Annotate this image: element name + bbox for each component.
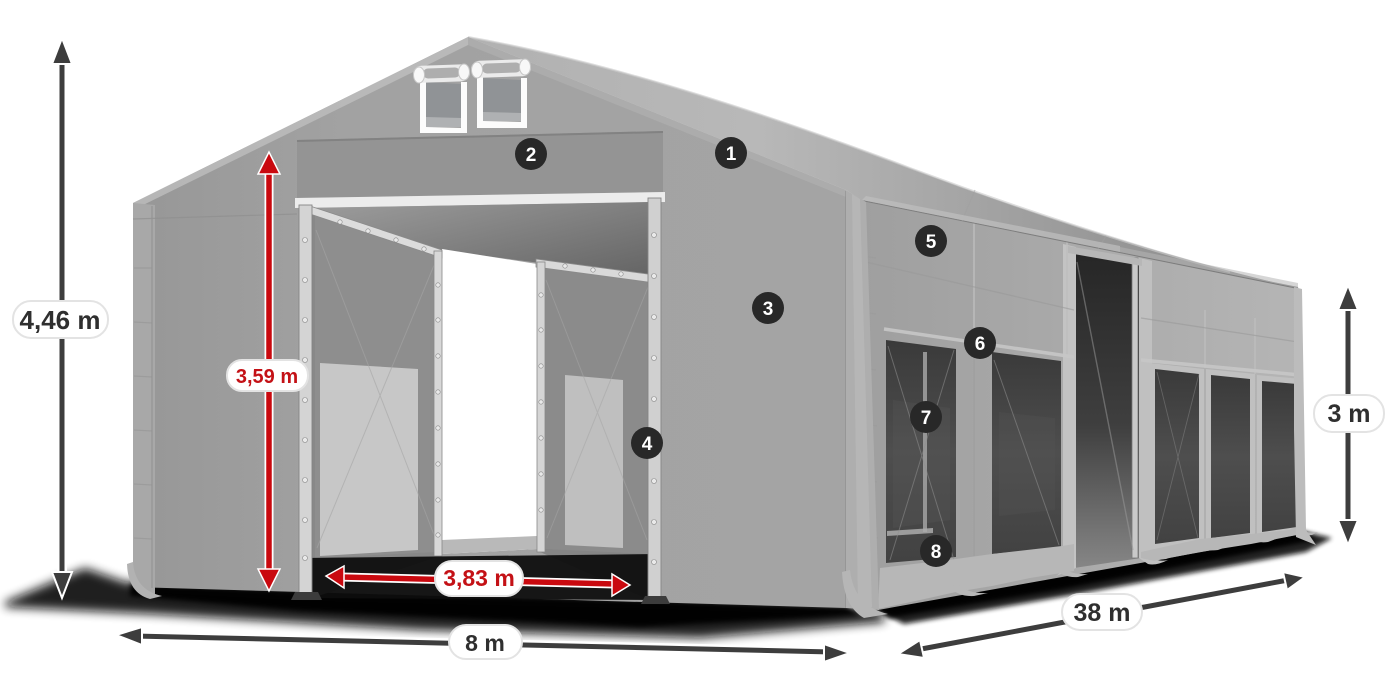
- svg-text:6: 6: [975, 334, 986, 355]
- svg-text:3,83 m: 3,83 m: [443, 565, 515, 591]
- svg-text:3 m: 3 m: [1327, 400, 1370, 428]
- svg-text:5: 5: [926, 232, 937, 253]
- svg-text:3: 3: [763, 299, 774, 320]
- svg-text:8: 8: [931, 542, 942, 563]
- svg-text:4,46 m: 4,46 m: [20, 305, 101, 335]
- svg-text:1: 1: [726, 144, 737, 165]
- svg-text:8 m: 8 m: [465, 630, 505, 656]
- svg-text:38 m: 38 m: [1074, 599, 1131, 627]
- svg-text:2: 2: [526, 145, 537, 166]
- svg-text:7: 7: [921, 408, 932, 429]
- svg-text:4: 4: [642, 434, 653, 455]
- svg-text:3,59 m: 3,59 m: [236, 366, 298, 388]
